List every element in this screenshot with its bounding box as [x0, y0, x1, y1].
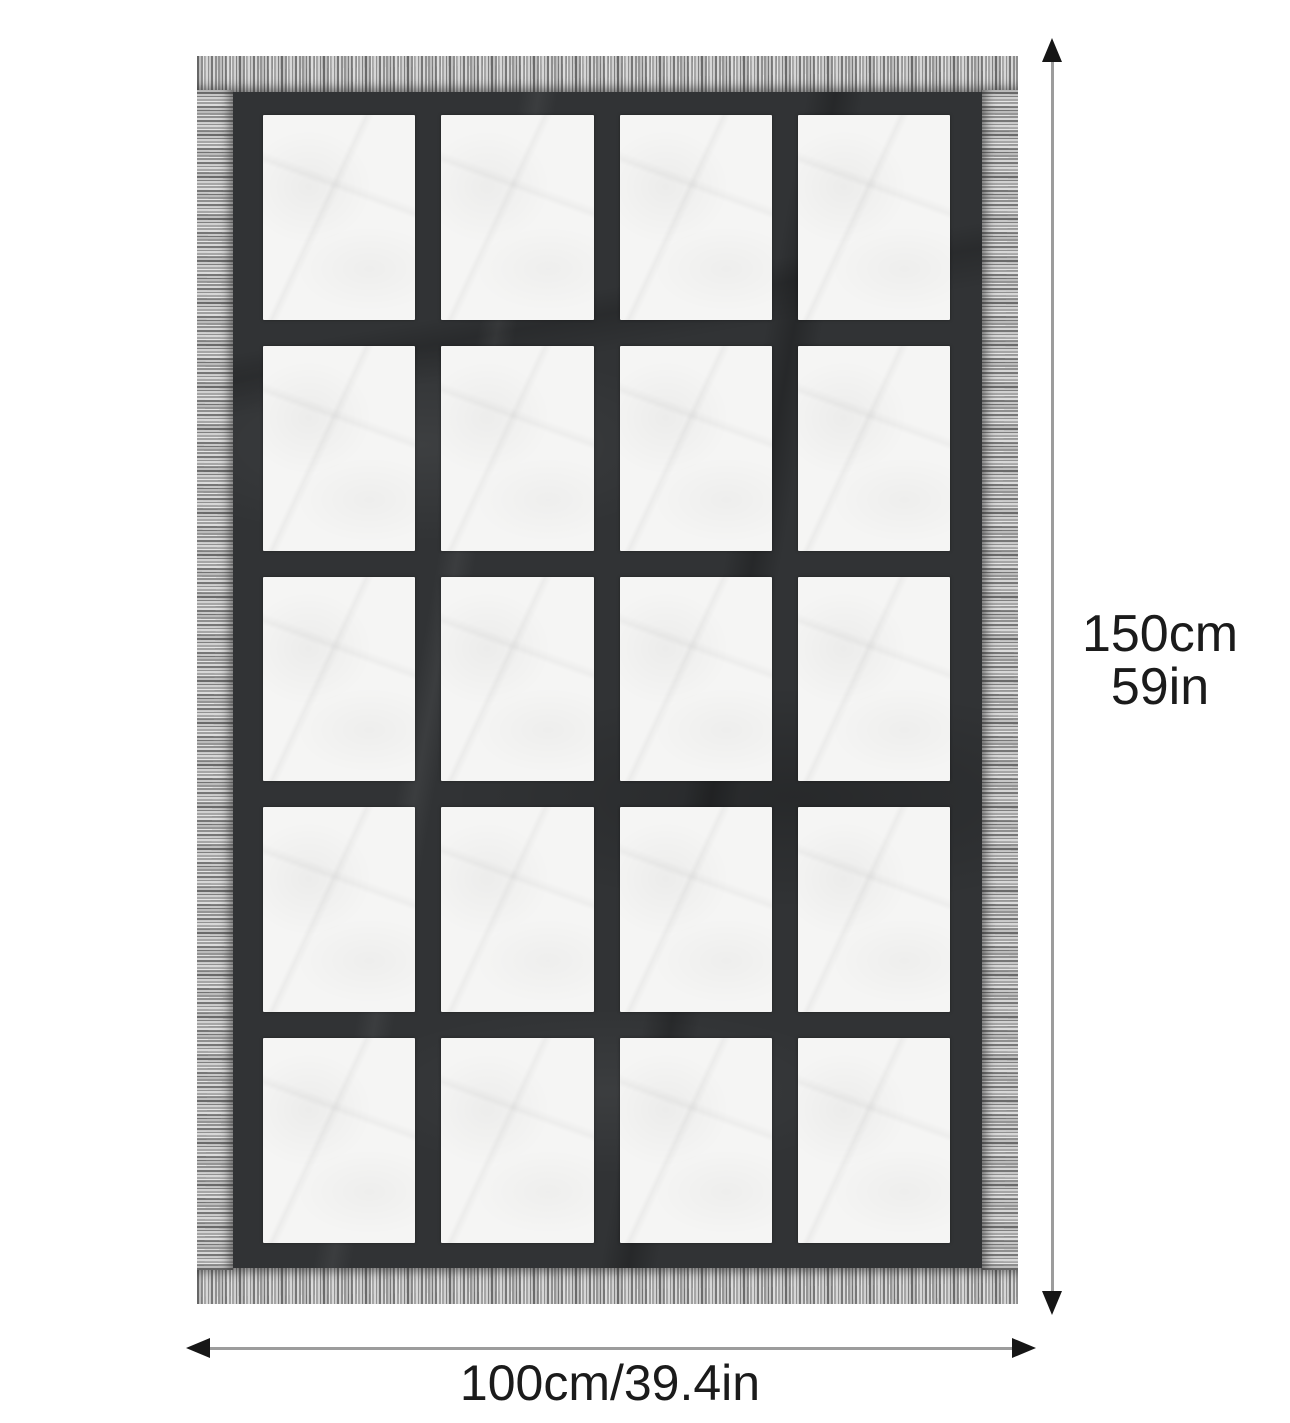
- photo-panel: [263, 115, 415, 320]
- photo-panel: [620, 577, 772, 782]
- product-dimension-diagram: 150cm 59in 100cm/39.4in: [0, 0, 1290, 1423]
- fringe-bottom: [197, 1268, 1018, 1304]
- arrowhead-up-icon: [1042, 38, 1062, 62]
- height-dimension-cm: 150cm: [1048, 608, 1272, 661]
- fringe-right: [982, 90, 1018, 1270]
- photo-panel: [798, 1038, 950, 1243]
- photo-panel: [441, 807, 593, 1012]
- photo-panel: [441, 577, 593, 782]
- panel-blanket: [197, 56, 1018, 1304]
- blanket-body: [233, 92, 982, 1268]
- arrowhead-down-icon: [1042, 1291, 1062, 1315]
- photo-panel: [441, 115, 593, 320]
- photo-panel: [263, 577, 415, 782]
- width-dimension-label: 100cm/39.4in: [260, 1358, 960, 1408]
- photo-panel: [798, 115, 950, 320]
- arrowhead-right-icon: [1012, 1338, 1036, 1358]
- photo-panel: [441, 346, 593, 551]
- photo-panel: [798, 807, 950, 1012]
- photo-panel: [620, 807, 772, 1012]
- panel-grid: [233, 92, 982, 1268]
- photo-panel: [798, 577, 950, 782]
- height-dimension-label: 150cm 59in: [1048, 608, 1272, 714]
- photo-panel: [263, 346, 415, 551]
- fringe-top: [197, 56, 1018, 92]
- photo-panel: [263, 807, 415, 1012]
- photo-panel: [441, 1038, 593, 1243]
- horizontal-arrow-shaft: [210, 1347, 1012, 1350]
- photo-panel: [620, 115, 772, 320]
- height-dimension-in: 59in: [1048, 661, 1272, 714]
- photo-panel: [620, 346, 772, 551]
- fringe-left: [197, 90, 233, 1270]
- photo-panel: [620, 1038, 772, 1243]
- photo-panel: [798, 346, 950, 551]
- arrowhead-left-icon: [186, 1338, 210, 1358]
- photo-panel: [263, 1038, 415, 1243]
